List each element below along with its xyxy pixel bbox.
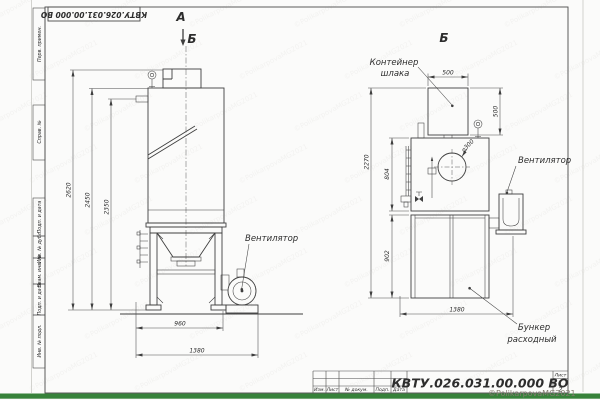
container-label-line1: Контейнер — [370, 58, 419, 68]
view-b-fan-label: Вентилятор — [518, 156, 571, 166]
view-b: Б Контейнер шлака — [364, 31, 572, 345]
container-label-line2: шлака — [381, 69, 410, 79]
margin-label: Подп. и дата — [37, 283, 43, 316]
drawing-sheet: ©PolikarpovaMG2021©PolikarpovaMG2021©Pol… — [0, 0, 600, 400]
dim-2620: 2620 — [66, 182, 73, 197]
margin-label: Перв. примен. — [37, 26, 43, 62]
top-stamp: КВТУ.026.031.00.000 ВО — [40, 7, 147, 21]
dim-2450: 2450 — [85, 192, 92, 207]
drawing-svg: Перв. примен. Справ. № Подп. и дата Инв.… — [0, 0, 600, 400]
dim-500-right: 500 — [493, 106, 500, 118]
view-a: А Б — [66, 10, 304, 358]
hopper-label-line1: Бункер — [518, 323, 550, 333]
view-a-fan-label: Вентилятор — [245, 234, 298, 244]
sheet-label: Лист — [554, 373, 567, 379]
dim-960: 960 — [174, 321, 186, 328]
dim-dia300: ⌀300 — [460, 138, 476, 154]
view-b-label: Б — [439, 31, 448, 45]
rev-col-dokum: № докум. — [344, 387, 368, 393]
margin-column: Перв. примен. Справ. № Подп. и дата Инв.… — [33, 8, 45, 368]
dim-2270: 2270 — [364, 154, 371, 169]
margin-label: Подп. и дата — [37, 201, 43, 234]
margin-label: Справ. № — [37, 120, 43, 143]
dim-804: 804 — [384, 168, 391, 180]
rev-col-izm: Изм. — [314, 387, 325, 393]
sheet-frame — [32, 0, 584, 393]
dim-1380-a: 1380 — [189, 348, 204, 355]
dim-2350: 2350 — [104, 199, 111, 214]
top-stamp-text: КВТУ.026.031.00.000 ВО — [40, 10, 147, 19]
dim-500-top: 500 — [442, 70, 454, 77]
watermark-text: ©PolikarpovaMG2021 — [488, 389, 576, 398]
rev-col-list: Лист — [326, 387, 339, 393]
view-a-section-label: Б — [187, 32, 196, 46]
rev-col-podp: Подп. — [376, 387, 390, 393]
hopper-label-line2: расходный — [506, 335, 557, 345]
margin-label: Инв. № подл. — [37, 324, 43, 357]
view-a-label: А — [175, 10, 185, 24]
dim-902: 902 — [384, 250, 391, 262]
dim-1380-b: 1380 — [449, 307, 464, 314]
margin-label: Взам. инв. № — [37, 255, 43, 288]
